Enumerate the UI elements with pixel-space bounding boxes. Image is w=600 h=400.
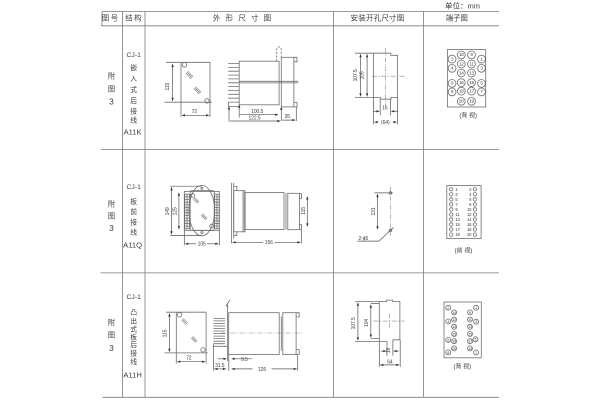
svg-text:后: 后: [130, 96, 137, 105]
svg-text:16: 16: [452, 332, 456, 336]
svg-text:13: 13: [468, 325, 472, 329]
svg-text:20: 20: [459, 99, 464, 104]
svg-text:A11H: A11H: [123, 371, 141, 380]
svg-text:(前 视): (前 视): [455, 247, 473, 255]
svg-text:附: 附: [108, 318, 115, 327]
svg-text:16: 16: [459, 80, 464, 85]
svg-text:115: 115: [301, 207, 307, 215]
svg-text:72: 72: [186, 356, 192, 362]
svg-text:11: 11: [468, 318, 472, 322]
svg-text:35: 35: [285, 114, 291, 120]
svg-text:(64): (64): [381, 120, 390, 126]
svg-text:8: 8: [447, 351, 449, 355]
svg-text:7: 7: [480, 89, 483, 94]
svg-text:104: 104: [364, 319, 370, 327]
svg-text:5: 5: [480, 81, 483, 86]
svg-text:122.5: 122.5: [248, 115, 260, 121]
svg-text:5: 5: [475, 338, 477, 342]
svg-text:17: 17: [468, 340, 472, 344]
svg-text:131: 131: [371, 207, 377, 215]
svg-text:图号: 图号: [102, 14, 120, 23]
svg-text:凸: 凸: [130, 308, 137, 316]
svg-text:接: 接: [130, 349, 137, 358]
svg-text:图: 图: [108, 85, 115, 94]
svg-text:嵌: 嵌: [130, 64, 137, 72]
svg-text:12: 12: [452, 318, 456, 322]
svg-text:3: 3: [475, 320, 477, 324]
svg-text:14: 14: [452, 325, 456, 329]
svg-text:6: 6: [451, 81, 454, 86]
svg-text:板: 板: [130, 197, 137, 206]
svg-text:8: 8: [451, 89, 454, 94]
svg-text:外形尺寸图: 外形尺寸图: [213, 13, 277, 23]
svg-text:16: 16: [382, 106, 388, 112]
svg-text:接: 接: [130, 217, 137, 226]
svg-text:9: 9: [470, 52, 473, 57]
svg-text:接: 接: [130, 106, 137, 115]
svg-text:10: 10: [459, 52, 464, 57]
svg-text:A11K: A11K: [124, 127, 142, 136]
svg-text:9.5: 9.5: [241, 357, 248, 363]
svg-text:前: 前: [130, 207, 137, 216]
svg-text:126: 126: [258, 367, 266, 373]
svg-text:单位：mm: 单位：mm: [445, 1, 480, 11]
svg-text:线: 线: [130, 115, 137, 124]
svg-text:板: 板: [130, 332, 137, 341]
svg-text:15: 15: [468, 332, 472, 336]
svg-text:2: 2: [447, 306, 449, 310]
svg-text:附: 附: [108, 199, 115, 208]
svg-text:式: 式: [130, 85, 137, 94]
svg-text:3: 3: [480, 66, 483, 71]
svg-text:20: 20: [452, 347, 456, 351]
svg-text:156: 156: [265, 240, 273, 246]
svg-text:105: 105: [360, 71, 366, 79]
svg-text:图: 图: [108, 212, 115, 221]
svg-text:安装开孔尺寸图: 安装开孔尺寸图: [351, 13, 405, 23]
svg-text:4: 4: [447, 320, 449, 324]
svg-text:1: 1: [475, 306, 477, 310]
svg-text:100.5: 100.5: [251, 109, 263, 115]
svg-text:(背 视): (背 视): [459, 111, 477, 119]
svg-text:64: 64: [387, 359, 393, 365]
svg-text:10: 10: [452, 311, 456, 315]
svg-text:13: 13: [469, 70, 474, 75]
svg-text:1: 1: [480, 56, 483, 61]
svg-text:端子图: 端子图: [446, 13, 468, 23]
svg-text:19: 19: [455, 232, 460, 237]
svg-text:9: 9: [469, 311, 471, 315]
svg-text:72: 72: [192, 109, 198, 115]
svg-text:入: 入: [130, 75, 137, 83]
svg-text:107.5: 107.5: [353, 69, 359, 81]
svg-text:149: 149: [165, 207, 171, 215]
svg-text:19: 19: [468, 347, 472, 351]
svg-text:CJ-1: CJ-1: [127, 294, 142, 301]
svg-text:125: 125: [173, 207, 179, 215]
svg-text:2-ϕ5: 2-ϕ5: [359, 236, 369, 242]
svg-text:6: 6: [447, 338, 449, 342]
svg-text:16: 16: [386, 348, 392, 354]
svg-text:7: 7: [475, 351, 477, 355]
svg-text:18: 18: [459, 88, 464, 93]
svg-text:31.5: 31.5: [215, 363, 225, 369]
svg-text:115: 115: [165, 83, 171, 91]
svg-text:CJ-1: CJ-1: [127, 52, 142, 59]
svg-text:图: 图: [108, 331, 115, 340]
svg-text:18: 18: [452, 340, 456, 344]
svg-text:14: 14: [459, 70, 464, 75]
svg-text:3: 3: [109, 96, 114, 106]
svg-text:17: 17: [469, 88, 474, 93]
svg-text:3: 3: [109, 343, 114, 353]
svg-text:后: 后: [130, 340, 137, 349]
svg-text:115: 115: [162, 329, 168, 337]
svg-text:结构: 结构: [125, 13, 143, 23]
svg-text:线: 线: [130, 357, 137, 366]
svg-text:式: 式: [130, 325, 137, 334]
svg-text:出: 出: [130, 317, 137, 326]
svg-text:CJ-1: CJ-1: [127, 184, 142, 191]
svg-text:105: 105: [198, 242, 206, 248]
svg-text:12: 12: [459, 61, 464, 66]
svg-text:(背 视): (背 视): [453, 362, 471, 370]
svg-text:11: 11: [469, 61, 474, 66]
svg-text:15: 15: [469, 80, 474, 85]
svg-text:107.5: 107.5: [351, 317, 357, 329]
svg-text:A11Q: A11Q: [123, 240, 142, 249]
svg-text:2: 2: [451, 56, 454, 61]
svg-text:20: 20: [467, 232, 472, 237]
svg-text:附: 附: [108, 71, 115, 80]
svg-text:线: 线: [130, 228, 137, 237]
svg-text:3: 3: [109, 223, 114, 233]
svg-text:4: 4: [451, 66, 454, 71]
svg-text:19: 19: [469, 99, 474, 104]
